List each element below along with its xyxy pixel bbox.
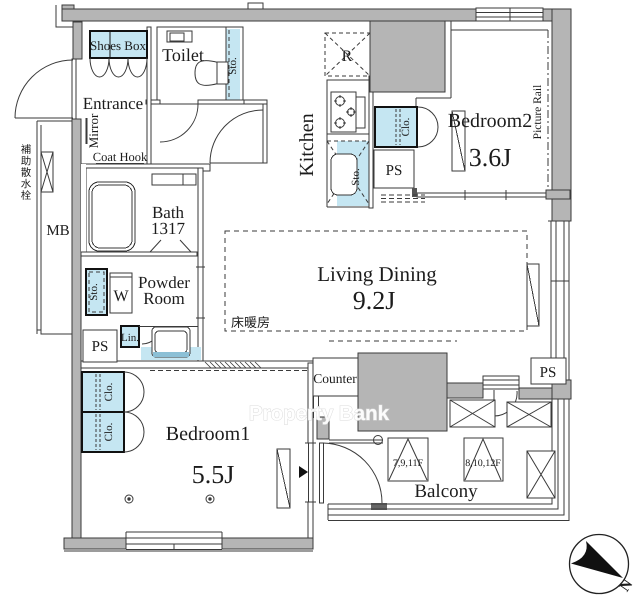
svg-text:7,9,11F: 7,9,11F — [393, 458, 424, 469]
svg-text:8,10,12F: 8,10,12F — [465, 458, 501, 469]
svg-text:Property Bank: Property Bank — [249, 402, 390, 425]
svg-text:Toilet: Toilet — [162, 45, 204, 65]
svg-text:Kitchen: Kitchen — [296, 113, 318, 176]
svg-text:Clo.: Clo. — [400, 117, 412, 136]
svg-text:PS: PS — [386, 163, 403, 179]
svg-text:Sto.: Sto. — [350, 168, 362, 186]
svg-text:Coat Hook: Coat Hook — [93, 150, 148, 164]
svg-text:Shoes Box: Shoes Box — [90, 38, 146, 53]
svg-text:W: W — [113, 288, 129, 305]
svg-text:Living Dining: Living Dining — [317, 262, 437, 286]
svg-text:Entrance: Entrance — [83, 94, 143, 113]
svg-text:PS: PS — [92, 339, 109, 355]
svg-text:N: N — [617, 577, 636, 595]
svg-text:Clo.: Clo. — [103, 422, 115, 441]
svg-text:Bedroom2: Bedroom2 — [448, 110, 532, 132]
svg-text:Balcony: Balcony — [414, 481, 478, 502]
svg-text:Bedroom1: Bedroom1 — [166, 423, 250, 445]
svg-text:9.2J: 9.2J — [353, 286, 396, 315]
svg-text:Sto.: Sto. — [227, 57, 239, 75]
svg-text:5.5J: 5.5J — [192, 460, 235, 489]
svg-text:Mirror: Mirror — [86, 113, 101, 148]
svg-text:補助散水栓: 補助散水栓 — [21, 144, 32, 202]
svg-text:床暖房: 床暖房 — [231, 315, 270, 330]
svg-text:Lin.: Lin. — [121, 332, 139, 344]
svg-text:MB: MB — [46, 223, 69, 239]
svg-text:Picture Rail: Picture Rail — [532, 85, 544, 140]
svg-text:1317: 1317 — [151, 219, 186, 238]
svg-text:R: R — [342, 48, 353, 65]
svg-text:Room: Room — [143, 289, 185, 308]
svg-text:Counter: Counter — [313, 371, 357, 386]
svg-text:Sto.: Sto. — [88, 283, 100, 301]
svg-text:PS: PS — [540, 365, 557, 381]
svg-text:Clo.: Clo. — [103, 382, 115, 401]
svg-text:3.6J: 3.6J — [469, 143, 512, 172]
